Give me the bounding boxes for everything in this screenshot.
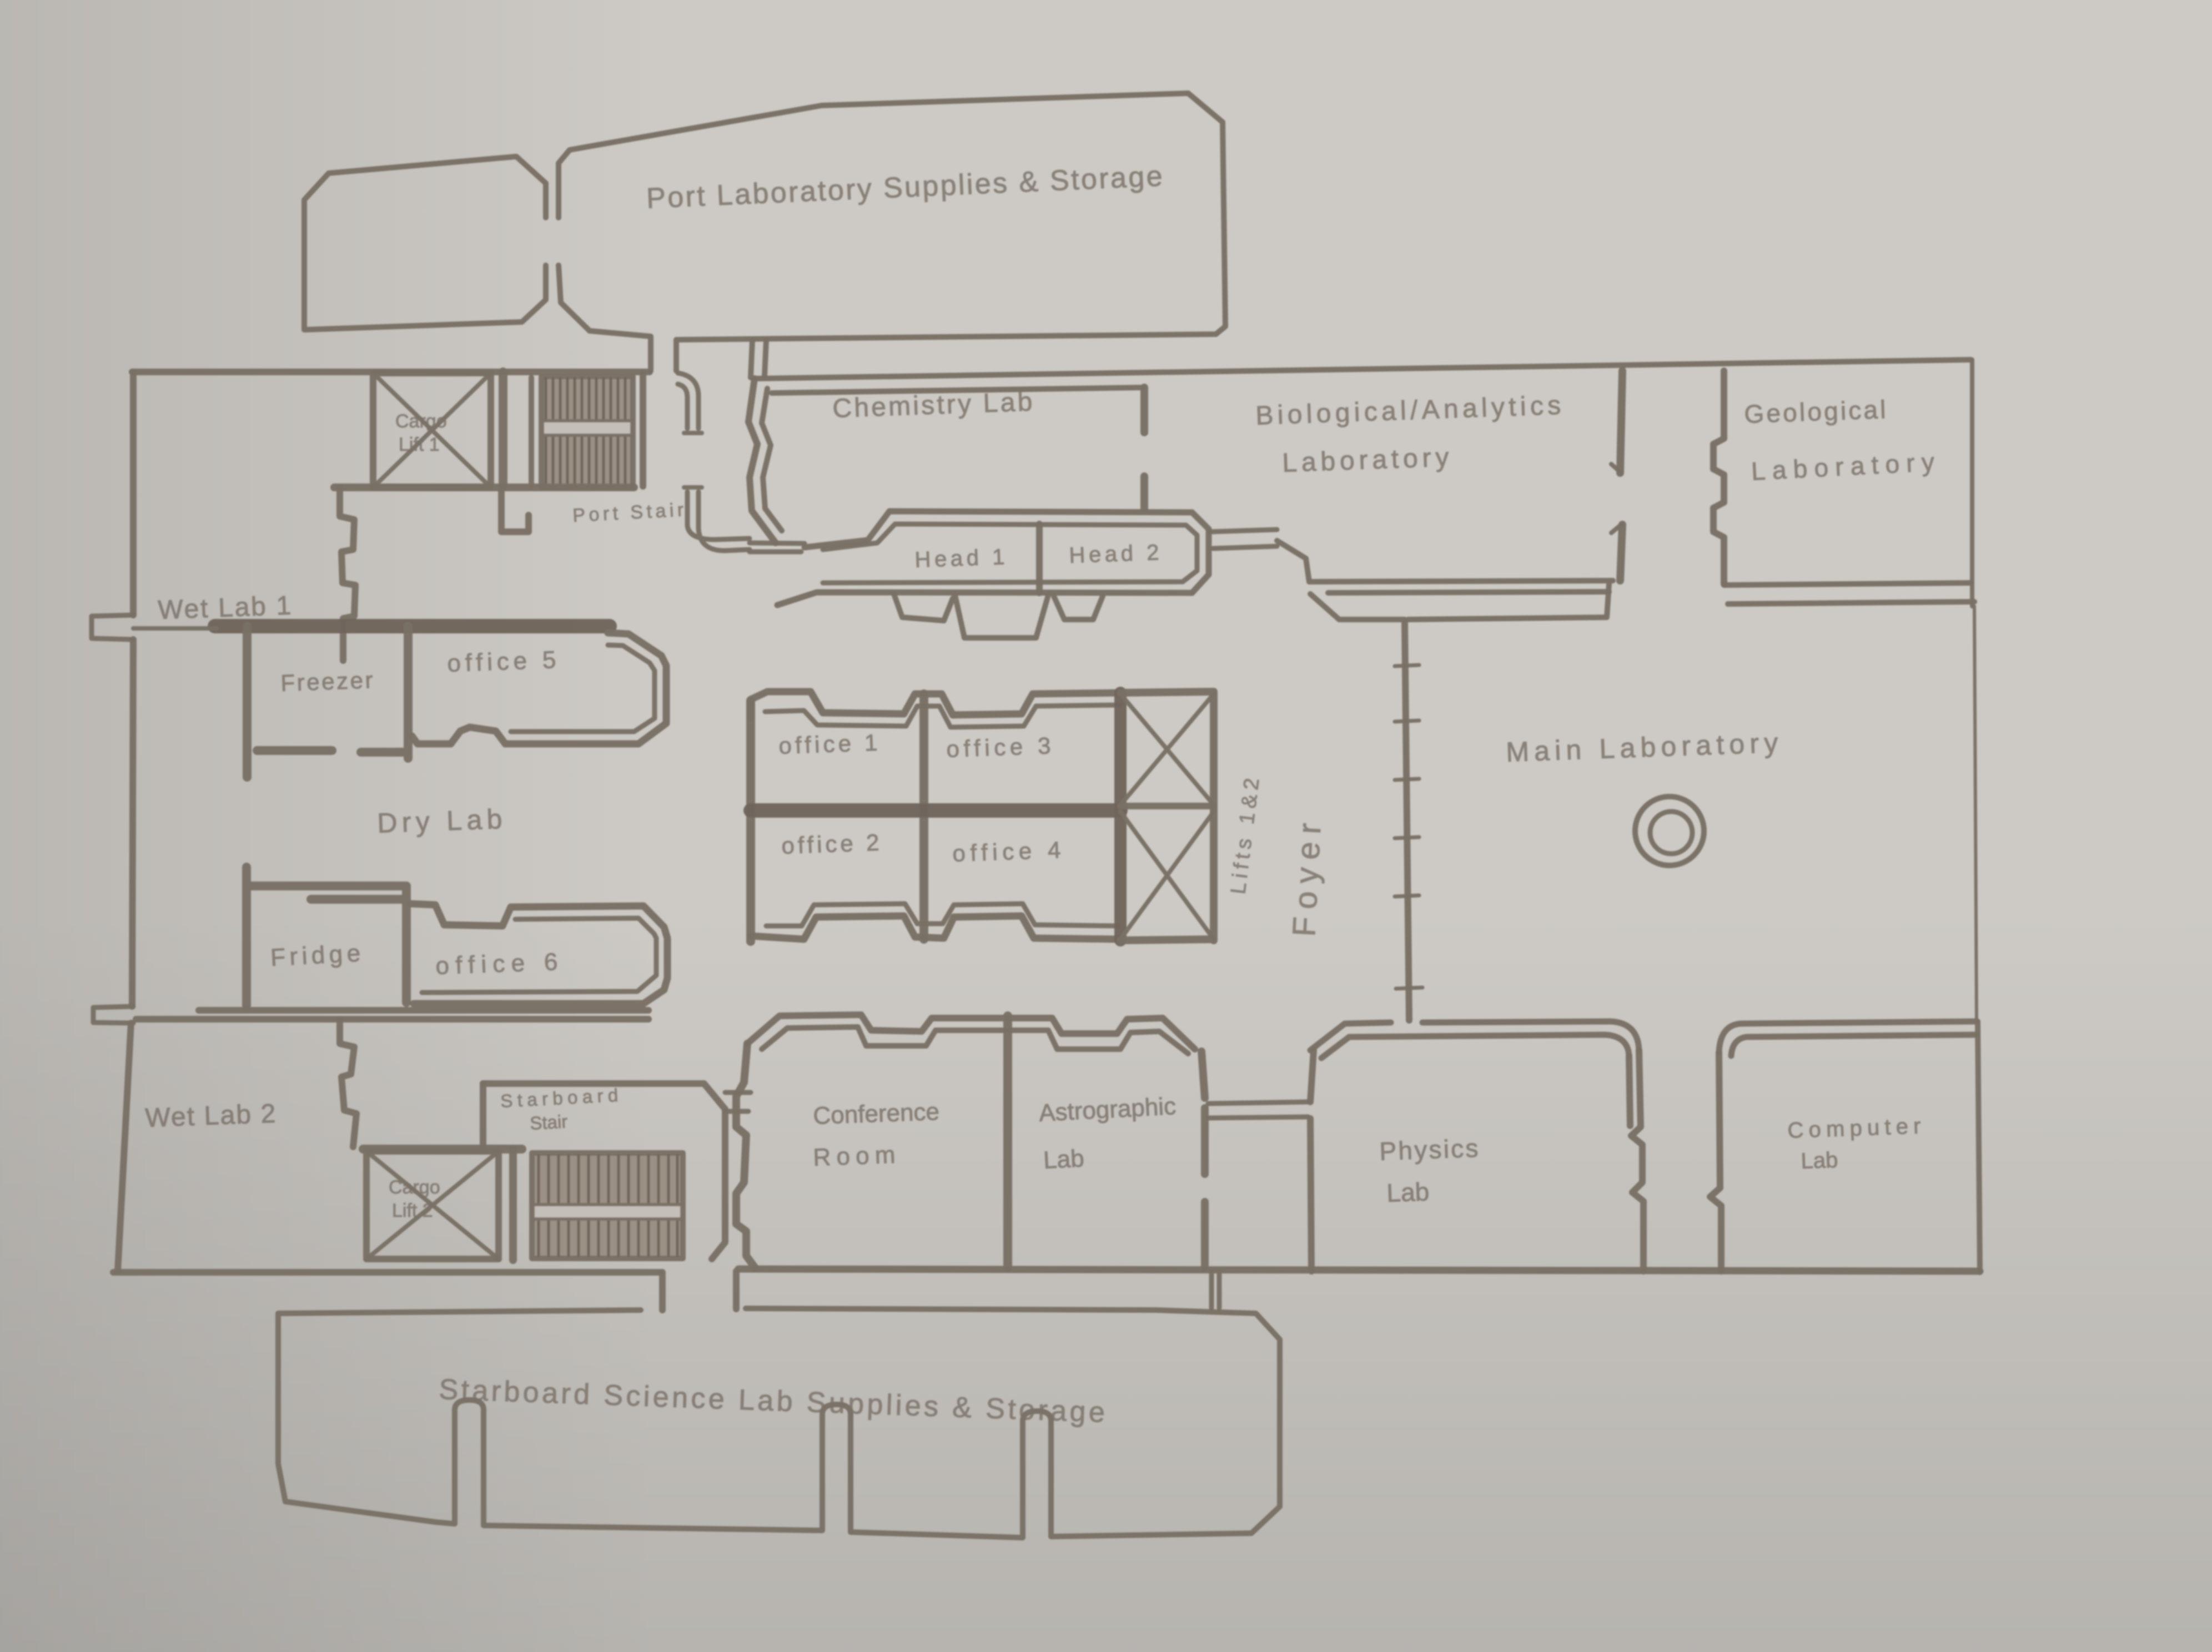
svg-text:Conference: Conference: [813, 1098, 940, 1130]
svg-text:Lift 1: Lift 1: [399, 434, 440, 455]
svg-text:Stair: Stair: [529, 1111, 568, 1134]
svg-text:Fridge: Fridge: [270, 940, 361, 971]
svg-text:Wet Lab 2: Wet Lab 2: [145, 1099, 276, 1133]
svg-text:Lab: Lab: [1801, 1148, 1838, 1173]
svg-text:Freezer: Freezer: [280, 667, 374, 696]
svg-text:Lab: Lab: [1386, 1177, 1430, 1207]
svg-text:Cargo: Cargo: [389, 1177, 440, 1198]
svg-text:Lab: Lab: [1043, 1145, 1085, 1174]
svg-text:Laboratory: Laboratory: [1282, 443, 1450, 478]
svg-text:Lift 2: Lift 2: [392, 1200, 433, 1221]
svg-text:Foyer: Foyer: [1286, 814, 1328, 937]
svg-text:Cargo: Cargo: [395, 411, 447, 432]
